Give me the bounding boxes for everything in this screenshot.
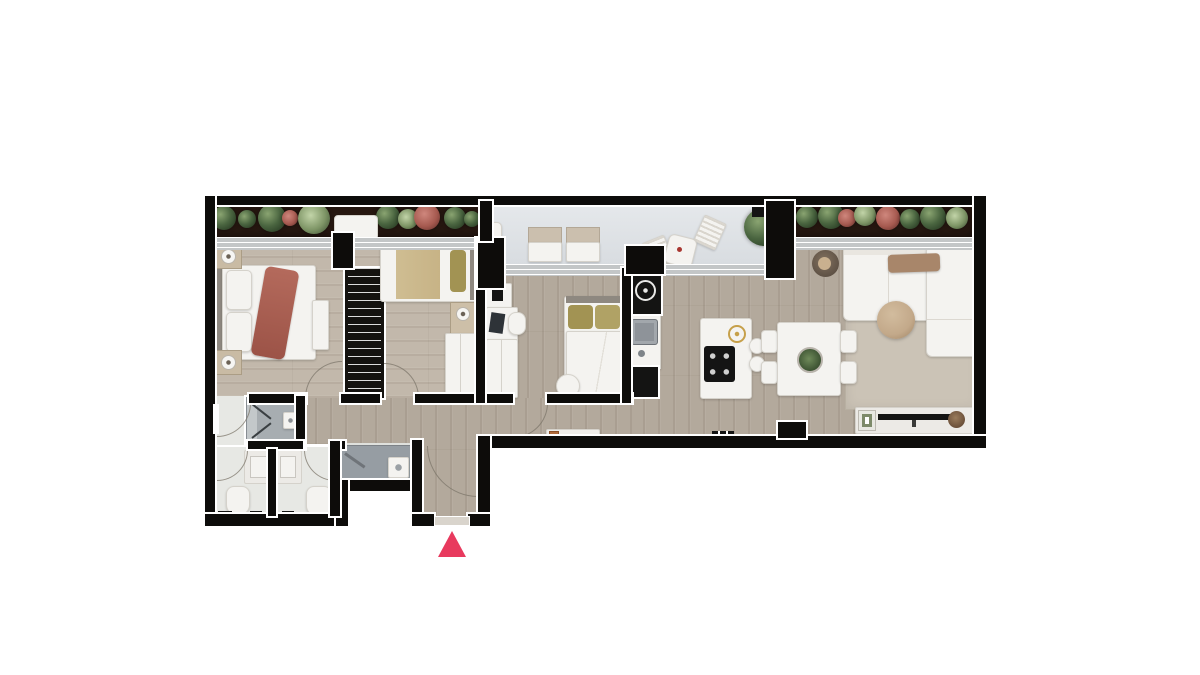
plant-icon xyxy=(444,207,466,229)
sofa-throw-tray xyxy=(888,253,941,273)
oven-icon xyxy=(631,319,658,345)
plant-icon xyxy=(796,206,818,228)
wall-entry-right xyxy=(478,436,490,526)
lamp-icon xyxy=(221,355,236,370)
wardrobe-bedroom2 xyxy=(445,333,478,397)
wall-entry-stub-right xyxy=(468,514,490,526)
desk-chair xyxy=(508,312,526,335)
pillow xyxy=(226,270,252,310)
entry-threshold xyxy=(434,516,470,526)
wall-planter-divider xyxy=(480,201,492,241)
wall-bottom-left xyxy=(205,514,348,526)
picture-frame xyxy=(858,410,876,431)
side-table-decor xyxy=(818,257,831,270)
dining-chair xyxy=(761,330,778,353)
pillow-olive xyxy=(450,250,466,292)
wall-balcony-left-pillar xyxy=(478,238,504,288)
entrance-marker-icon xyxy=(438,531,466,557)
wall-wc2-right xyxy=(330,441,340,516)
bed3-headboard xyxy=(566,296,620,303)
pillow-olive xyxy=(568,305,593,329)
wall-bottom-main xyxy=(478,436,986,448)
plant-icon xyxy=(298,203,330,234)
washing-machine xyxy=(388,457,409,478)
dining-chair xyxy=(840,330,857,353)
floor-plan-canvas xyxy=(0,0,1200,675)
decor-plant-pot xyxy=(948,411,965,428)
flower-plant-icon xyxy=(282,210,298,226)
wall-right xyxy=(974,196,986,448)
lamp-icon xyxy=(456,307,470,321)
dining-chair xyxy=(761,361,778,384)
tv-stand xyxy=(912,420,916,427)
living-room-window xyxy=(794,237,974,250)
wall-master-bottom-b xyxy=(341,394,380,403)
wall-bedroom3-bottom-b xyxy=(547,394,632,403)
dining-chair xyxy=(840,361,857,384)
wardrobe-bedroom3 xyxy=(486,339,518,398)
wall-top xyxy=(205,196,986,205)
lounge-chair-seat xyxy=(528,242,562,262)
induction-hob-icon xyxy=(704,346,735,382)
plant-icon xyxy=(946,207,968,229)
master-window xyxy=(216,237,333,250)
pillow-olive xyxy=(595,305,620,329)
kitchen-base-cabinet xyxy=(628,367,658,397)
wall-left xyxy=(205,196,215,526)
wall-bedroom3-bottom-a xyxy=(484,394,513,403)
island-sink-gold-icon xyxy=(728,325,746,343)
wall-bedroom3-right xyxy=(622,268,631,403)
cup-icon xyxy=(677,247,682,252)
wall-pillar xyxy=(778,422,806,438)
lamp-icon xyxy=(221,249,236,264)
plant-icon xyxy=(464,211,480,227)
wardrobe-master xyxy=(345,268,384,398)
flower-plant-icon xyxy=(414,204,440,230)
plant-icon xyxy=(854,204,876,226)
plant-icon xyxy=(920,204,946,230)
wall-laundry-bottom xyxy=(336,480,422,491)
round-ottoman xyxy=(877,301,915,339)
vanity-sink xyxy=(274,450,302,484)
cooktop-burner-icon xyxy=(635,280,656,301)
towel-rail xyxy=(213,404,219,434)
flower-plant-icon xyxy=(876,206,900,230)
pillow xyxy=(226,312,252,352)
plant-icon xyxy=(376,205,400,229)
wall-wc-divider xyxy=(268,449,276,516)
table-centerpiece xyxy=(797,347,823,373)
bed-blanket-tan xyxy=(396,244,440,299)
wall-entry-stub-left xyxy=(412,514,434,526)
wall-balcony-right-pillar xyxy=(766,201,794,278)
shelf-decor-icon xyxy=(492,290,503,301)
bed-bench xyxy=(312,300,329,350)
laptop-icon xyxy=(489,312,506,334)
sink-icon xyxy=(638,350,645,357)
bedroom2-window xyxy=(353,237,477,250)
wall-kitchen-tab xyxy=(626,246,664,274)
wall-bath-mid-a xyxy=(248,441,303,449)
wall-window-pillar xyxy=(333,233,353,268)
plant-icon xyxy=(238,210,256,228)
plant-icon xyxy=(212,206,236,230)
plant-icon xyxy=(900,209,920,229)
balcony-floor xyxy=(484,205,766,266)
wall-bedroom2-bottom xyxy=(415,394,480,403)
lounge-chair-seat xyxy=(566,242,600,262)
